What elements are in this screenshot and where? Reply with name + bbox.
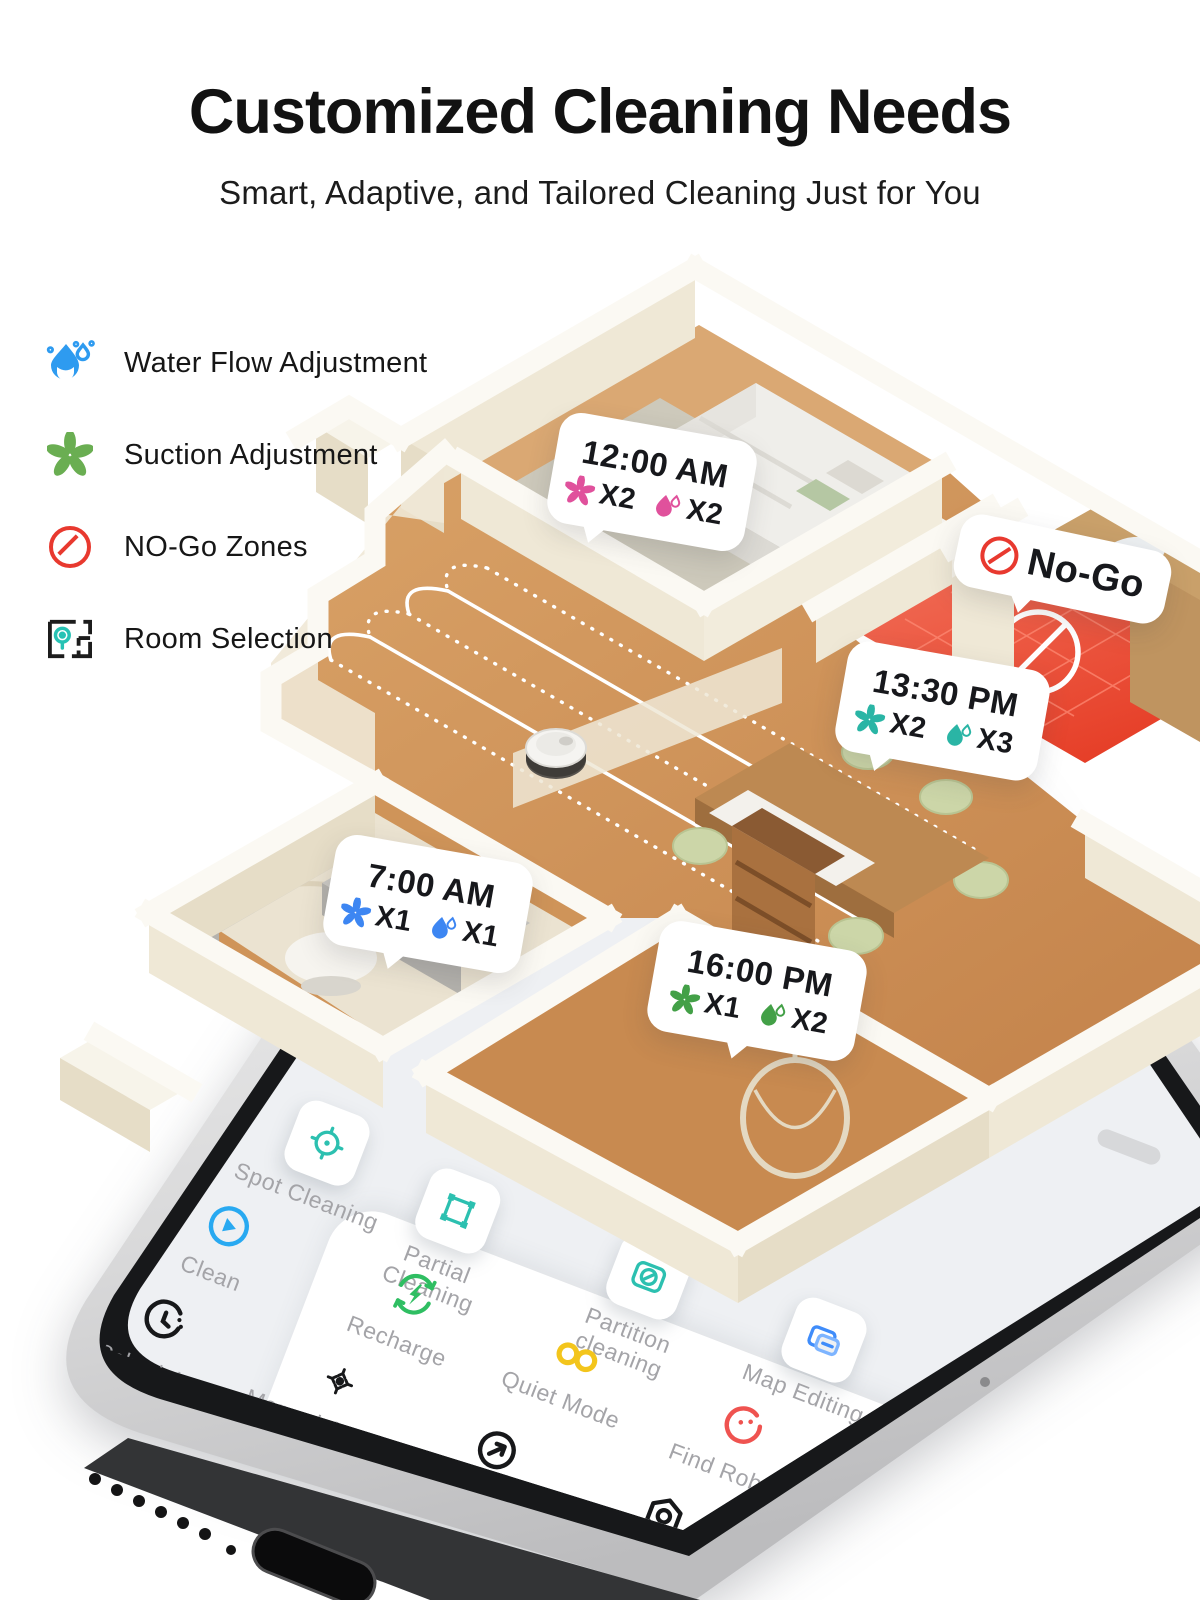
feature-room-selection: Room Selection <box>44 616 427 662</box>
no-entry-icon <box>44 524 96 570</box>
water-drop-icon <box>754 997 789 1032</box>
floorplan-pin-icon <box>44 616 96 662</box>
robot-vacuum <box>526 729 586 779</box>
screw-hole-icon <box>226 1545 236 1555</box>
feature-no-go: NO-Go Zones <box>44 524 427 570</box>
suction-fan-icon <box>852 702 887 737</box>
callout-no-go: No-Go <box>950 510 1176 627</box>
play-circle-icon <box>195 1194 261 1263</box>
pillow <box>826 460 884 494</box>
pillow-green <box>796 479 850 511</box>
screen-pill <box>1095 1127 1163 1167</box>
screen-text-fragment: a <box>1138 844 1163 878</box>
bed-headboard <box>768 466 915 551</box>
water-drop-icon <box>425 910 460 945</box>
fan-icon <box>44 432 96 478</box>
feature-list: Water Flow Adjustment Suction Adjustment… <box>44 340 427 708</box>
phone-screen-content: a Spot Cleaning Partial Cleaning <box>0 0 1200 1600</box>
callout-dining: 13:30 PM X2 X3 <box>832 638 1053 784</box>
suction-fan-icon <box>562 473 597 508</box>
feature-water-flow: Water Flow Adjustment <box>44 340 427 386</box>
mic-hole-icon <box>980 1377 990 1387</box>
header: Customized Cleaning Needs Smart, Adaptiv… <box>0 76 1200 212</box>
page: { "header": { "title": "Customized Clean… <box>0 0 1200 1600</box>
suction-fan-icon <box>338 895 373 930</box>
nightstand-side <box>879 512 926 560</box>
callout-living: 7:00 AM X1 X1 <box>320 831 536 976</box>
no-entry-icon <box>977 533 1022 578</box>
page-title: Customized Cleaning Needs <box>0 76 1200 148</box>
page-subtitle: Smart, Adaptive, and Tailored Cleaning J… <box>0 174 1200 212</box>
battery-indicator <box>1033 914 1119 1021</box>
water-drop-icon <box>939 717 974 752</box>
callout-bedroom: 12:00 AM X2 X2 <box>544 409 760 554</box>
alarm-clock-icon <box>129 1289 195 1358</box>
feature-suction: Suction Adjustment <box>44 432 427 478</box>
suction-fan-icon <box>667 982 702 1017</box>
water-drop-icon <box>44 340 96 386</box>
water-drop-icon <box>649 488 684 523</box>
nightstand <box>879 497 952 539</box>
speaker-holes-icon <box>89 1473 211 1540</box>
usb-port <box>246 1523 381 1600</box>
